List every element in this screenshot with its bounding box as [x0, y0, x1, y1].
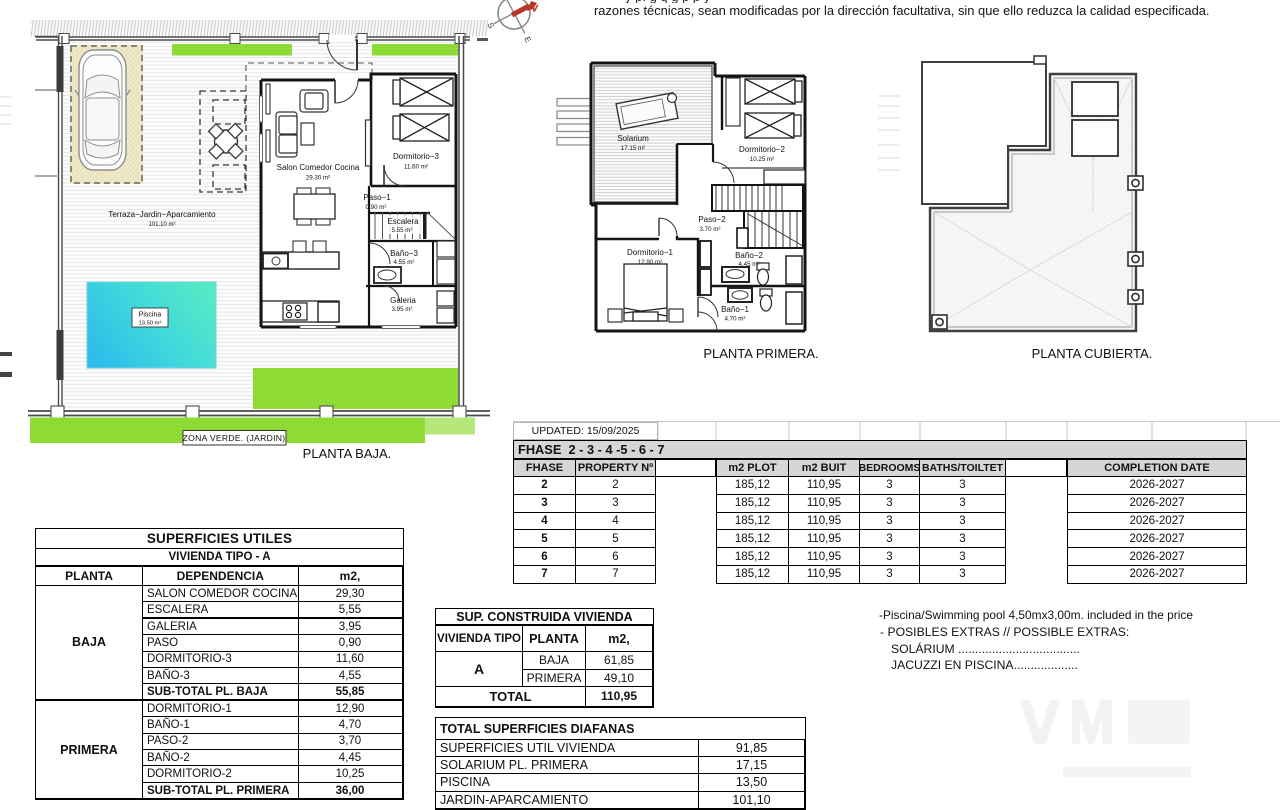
svg-text:Dormitorio−3: Dormitorio−3: [393, 152, 440, 161]
svg-text:17.15 m²: 17.15 m²: [621, 145, 645, 152]
svg-text:29.30 m²: 29.30 m²: [306, 175, 330, 182]
svg-text:11.60 m²: 11.60 m²: [404, 164, 428, 171]
svg-text:Salon Comedor Cocina: Salon Comedor Cocina: [277, 163, 360, 172]
svg-text:Paso−1: Paso−1: [363, 193, 391, 202]
svg-text:10.25 m²: 10.25 m²: [750, 156, 774, 163]
svg-text:0.90 m²: 0.90 m²: [366, 204, 387, 211]
svg-text:E: E: [522, 35, 532, 44]
svg-text:Baño−1: Baño−1: [721, 305, 749, 314]
svg-text:Escalera: Escalera: [387, 217, 419, 226]
svg-text:ZONA VERDE. (JARDIN): ZONA VERDE. (JARDIN): [183, 433, 286, 443]
svg-text:101.10 m²: 101.10 m²: [148, 222, 175, 228]
svg-text:PLANTA PRIMERA.: PLANTA PRIMERA.: [703, 346, 818, 361]
svg-text:Dormitorio−1: Dormitorio−1: [627, 248, 674, 257]
svg-text:Solarium: Solarium: [617, 134, 649, 143]
svg-text:PLANTA CUBIERTA.: PLANTA CUBIERTA.: [1032, 346, 1153, 361]
svg-text:3.70 m²: 3.70 m²: [700, 226, 721, 233]
svg-text:PLANTA BAJA.: PLANTA BAJA.: [303, 446, 392, 461]
svg-text:Baño−3: Baño−3: [390, 249, 418, 258]
svg-text:Dormitorio−2: Dormitorio−2: [739, 145, 786, 154]
svg-text:Paso−2: Paso−2: [698, 215, 726, 224]
svg-text:Terraza−Jardin−Aparcamiento: Terraza−Jardin−Aparcamiento: [108, 210, 216, 219]
svg-text:4.70 m²: 4.70 m²: [725, 316, 746, 323]
svg-text:Piscina: Piscina: [139, 312, 162, 319]
svg-text:3.95 m²: 3.95 m²: [392, 306, 413, 313]
svg-text:12.90 m²: 12.90 m²: [638, 259, 662, 266]
svg-text:4.55 m²: 4.55 m²: [394, 259, 415, 266]
svg-text:13.50 m²: 13.50 m²: [139, 321, 162, 327]
svg-text:Baño−2: Baño−2: [735, 251, 763, 260]
svg-text:N: N: [527, 1, 540, 15]
svg-text:Galeria: Galeria: [390, 296, 416, 305]
svg-text:5.55 m²: 5.55 m²: [392, 227, 413, 234]
svg-text:4.45 m²: 4.45 m²: [739, 261, 760, 268]
